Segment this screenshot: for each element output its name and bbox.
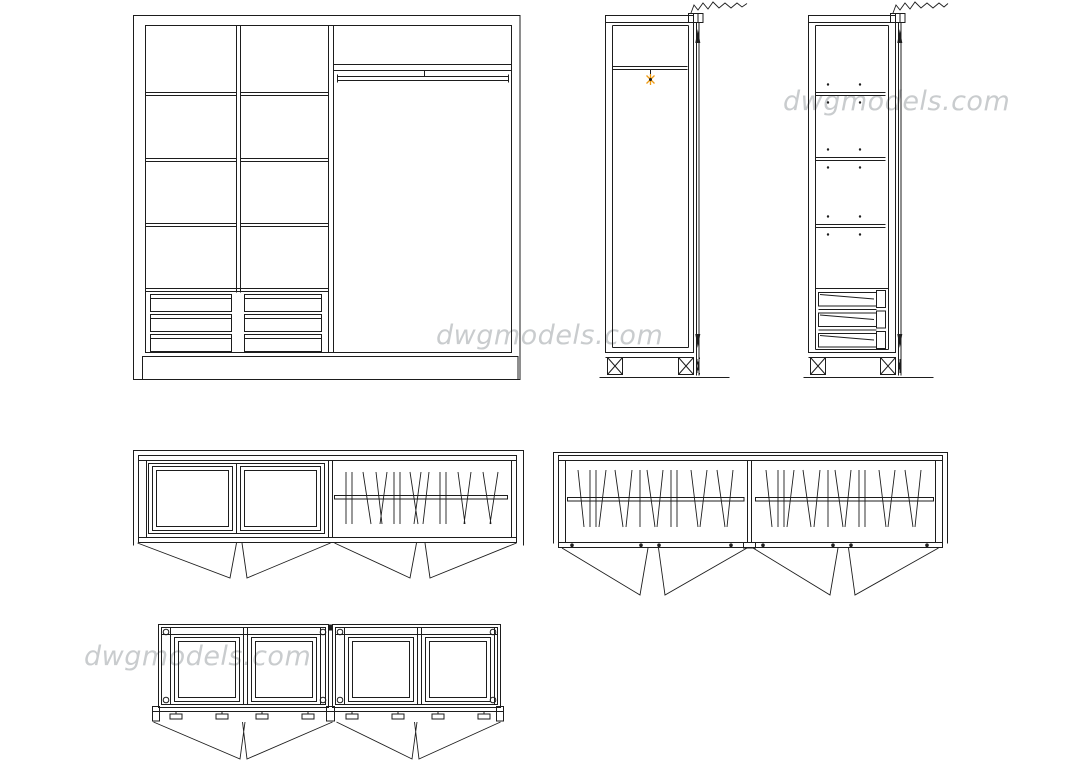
front-elevation-view <box>134 16 521 380</box>
cad-sheet: { "canvas": { "width": 1080, "height": 7… <box>0 0 1080 760</box>
plan-view-double-hangers <box>554 453 948 596</box>
door-swings <box>562 548 939 595</box>
hanger-rod <box>335 496 508 500</box>
plan-view-shelves-hangers <box>134 451 524 579</box>
side-section-hanging-view <box>600 2 748 378</box>
plan-view-door-modules <box>153 625 504 760</box>
module-junction <box>329 625 333 631</box>
hinge-dots <box>570 543 929 547</box>
base-legs <box>809 358 896 375</box>
wall-break-icon <box>891 2 949 23</box>
center-divider <box>744 461 756 549</box>
door-swings <box>154 722 501 759</box>
carcase-inner-walls <box>809 23 896 350</box>
carcase-outline <box>809 16 896 353</box>
plinth <box>143 357 519 380</box>
hanger-hook-icon <box>647 70 655 85</box>
shelf-pins <box>827 83 861 235</box>
door-leaf-line <box>697 23 700 376</box>
shelf-module <box>149 464 325 534</box>
hangers <box>346 472 498 524</box>
side-section-shelves-view <box>804 2 949 378</box>
module-frame <box>333 625 501 708</box>
hinge-strip <box>153 707 504 722</box>
hangers <box>578 470 921 527</box>
hanger-rod <box>568 498 745 502</box>
cad-drawing <box>0 0 1080 760</box>
door-leaf-line <box>899 23 902 376</box>
module-frame <box>159 625 329 708</box>
hanger-rod <box>756 498 934 502</box>
drawer-fronts <box>151 295 322 352</box>
carcase-inner-walls <box>606 23 694 348</box>
base-legs <box>606 358 694 375</box>
shelves <box>816 93 886 228</box>
door-swings <box>138 543 517 578</box>
carcase-inner-walls <box>146 26 512 353</box>
wall-break-icon <box>689 2 748 23</box>
drawer-stack <box>816 289 889 349</box>
hanging-rod <box>338 71 509 83</box>
